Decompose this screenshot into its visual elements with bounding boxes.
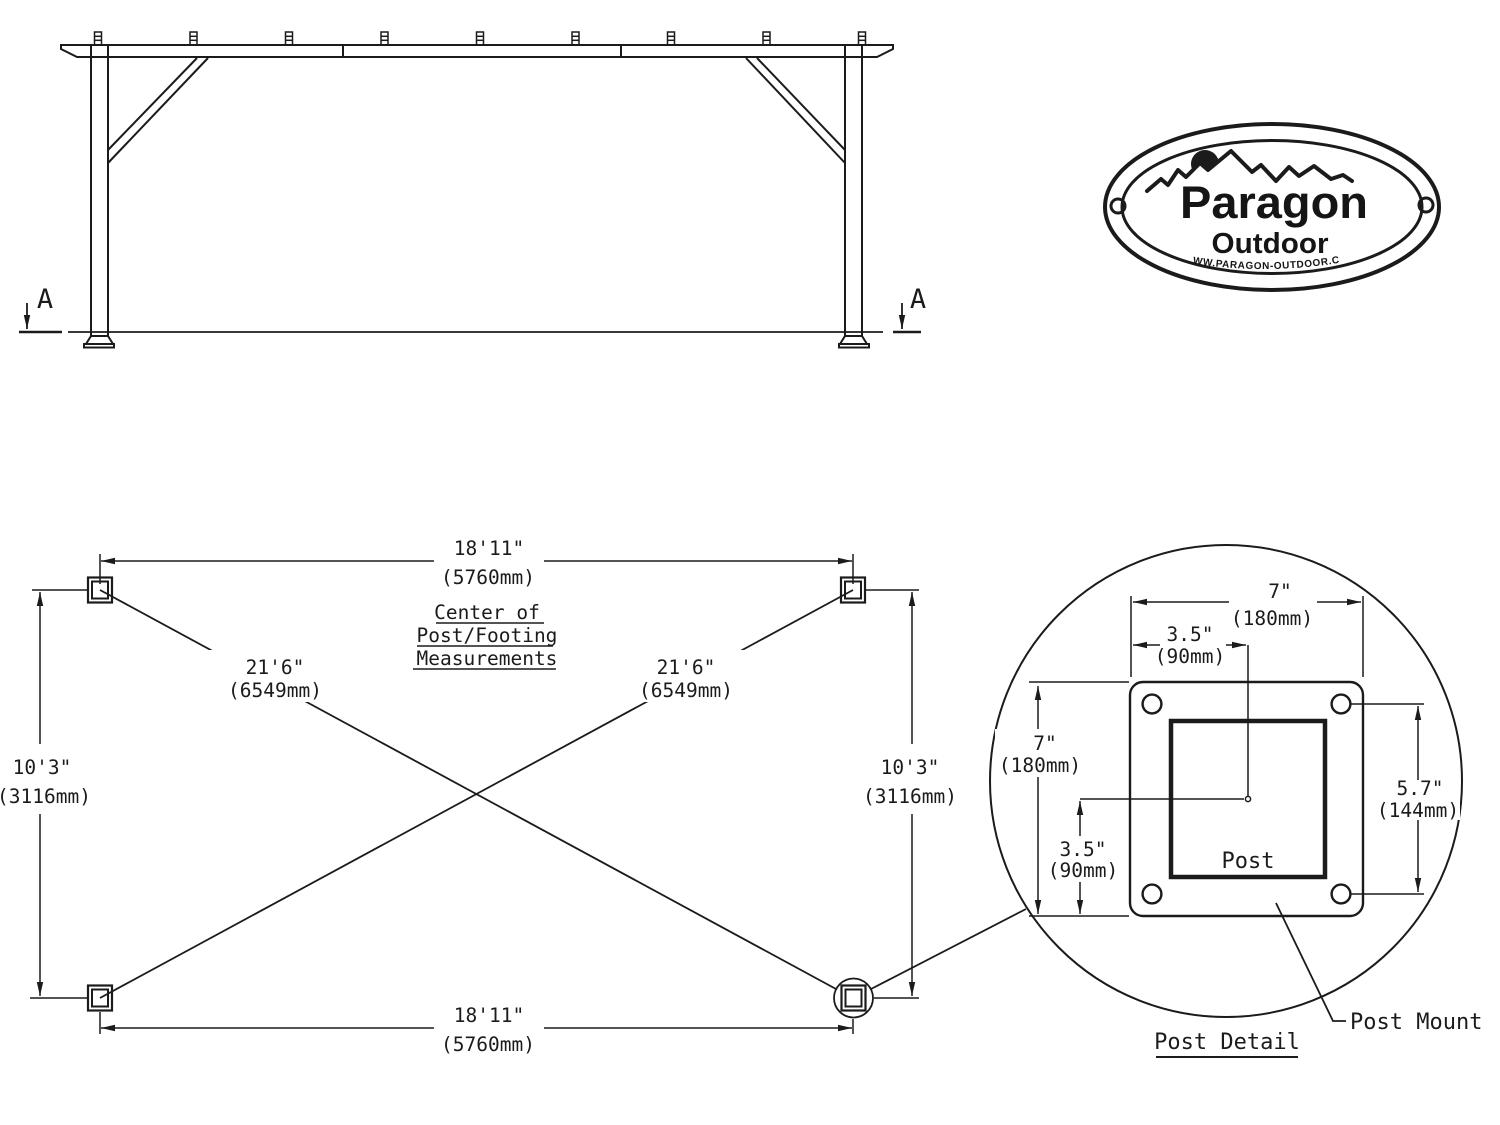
bolt-spacing-mm: (144mm) xyxy=(1377,799,1459,822)
post-mount-label: Post Mount xyxy=(1350,1010,1482,1035)
note-line-3: Measurements xyxy=(417,647,558,670)
plate-width-in: 7" xyxy=(1268,580,1291,603)
pergola-technical-drawing: A A Paragon Outdoor WWW.PARAGON-OUTDOOR.… xyxy=(0,0,1500,1125)
diag-left-ft: 21'6" xyxy=(246,656,305,679)
plate-half-width-mm: (90mm) xyxy=(1155,645,1225,668)
diag-right-ft: 21'6" xyxy=(657,656,716,679)
right-dim-ft: 10'3" xyxy=(881,756,940,779)
plan-note: Center of Post/Footing Measurements xyxy=(413,601,557,670)
bolt-spacing-in: 5.7" xyxy=(1397,777,1444,800)
plate-half-height-mm: (90mm) xyxy=(1048,859,1118,882)
detail-title-text: Post Detail xyxy=(1154,1030,1300,1055)
section-letter-left: A xyxy=(37,284,53,315)
diag-left-mm: (6549mm) xyxy=(228,679,322,702)
plate-half-width-in: 3.5" xyxy=(1167,623,1214,646)
bottom-dim-ft: 18'11" xyxy=(454,1004,524,1027)
top-dim-mm: (5760mm) xyxy=(441,566,535,589)
top-dim-ft: 18'11" xyxy=(454,537,524,560)
bottom-dim-mm: (5760mm) xyxy=(441,1033,535,1056)
post-label: Post xyxy=(1222,849,1275,874)
logo-brand-text: Paragon xyxy=(1180,177,1368,228)
plate-height-mm: (180mm) xyxy=(999,754,1081,777)
drawing-sheet: A A Paragon Outdoor WWW.PARAGON-OUTDOOR.… xyxy=(0,0,1500,1125)
plate-half-height-in: 3.5" xyxy=(1060,838,1107,861)
left-dim-ft: 10'3" xyxy=(13,756,72,779)
detail-title: Post Detail xyxy=(1154,1030,1300,1057)
section-letter-right: A xyxy=(910,284,926,315)
logo-subtitle-text: Outdoor xyxy=(1212,228,1329,260)
canvas-background xyxy=(0,0,1500,1125)
plate-width-mm: (180mm) xyxy=(1231,607,1313,630)
diag-right-mm: (6549mm) xyxy=(639,679,733,702)
note-line-2: Post/Footing xyxy=(417,624,558,647)
right-dim-mm: (3116mm) xyxy=(863,785,957,808)
note-line-1: Center of xyxy=(434,601,540,624)
left-dim-mm: (3116mm) xyxy=(0,785,91,808)
plate-height-in: 7" xyxy=(1033,732,1056,755)
